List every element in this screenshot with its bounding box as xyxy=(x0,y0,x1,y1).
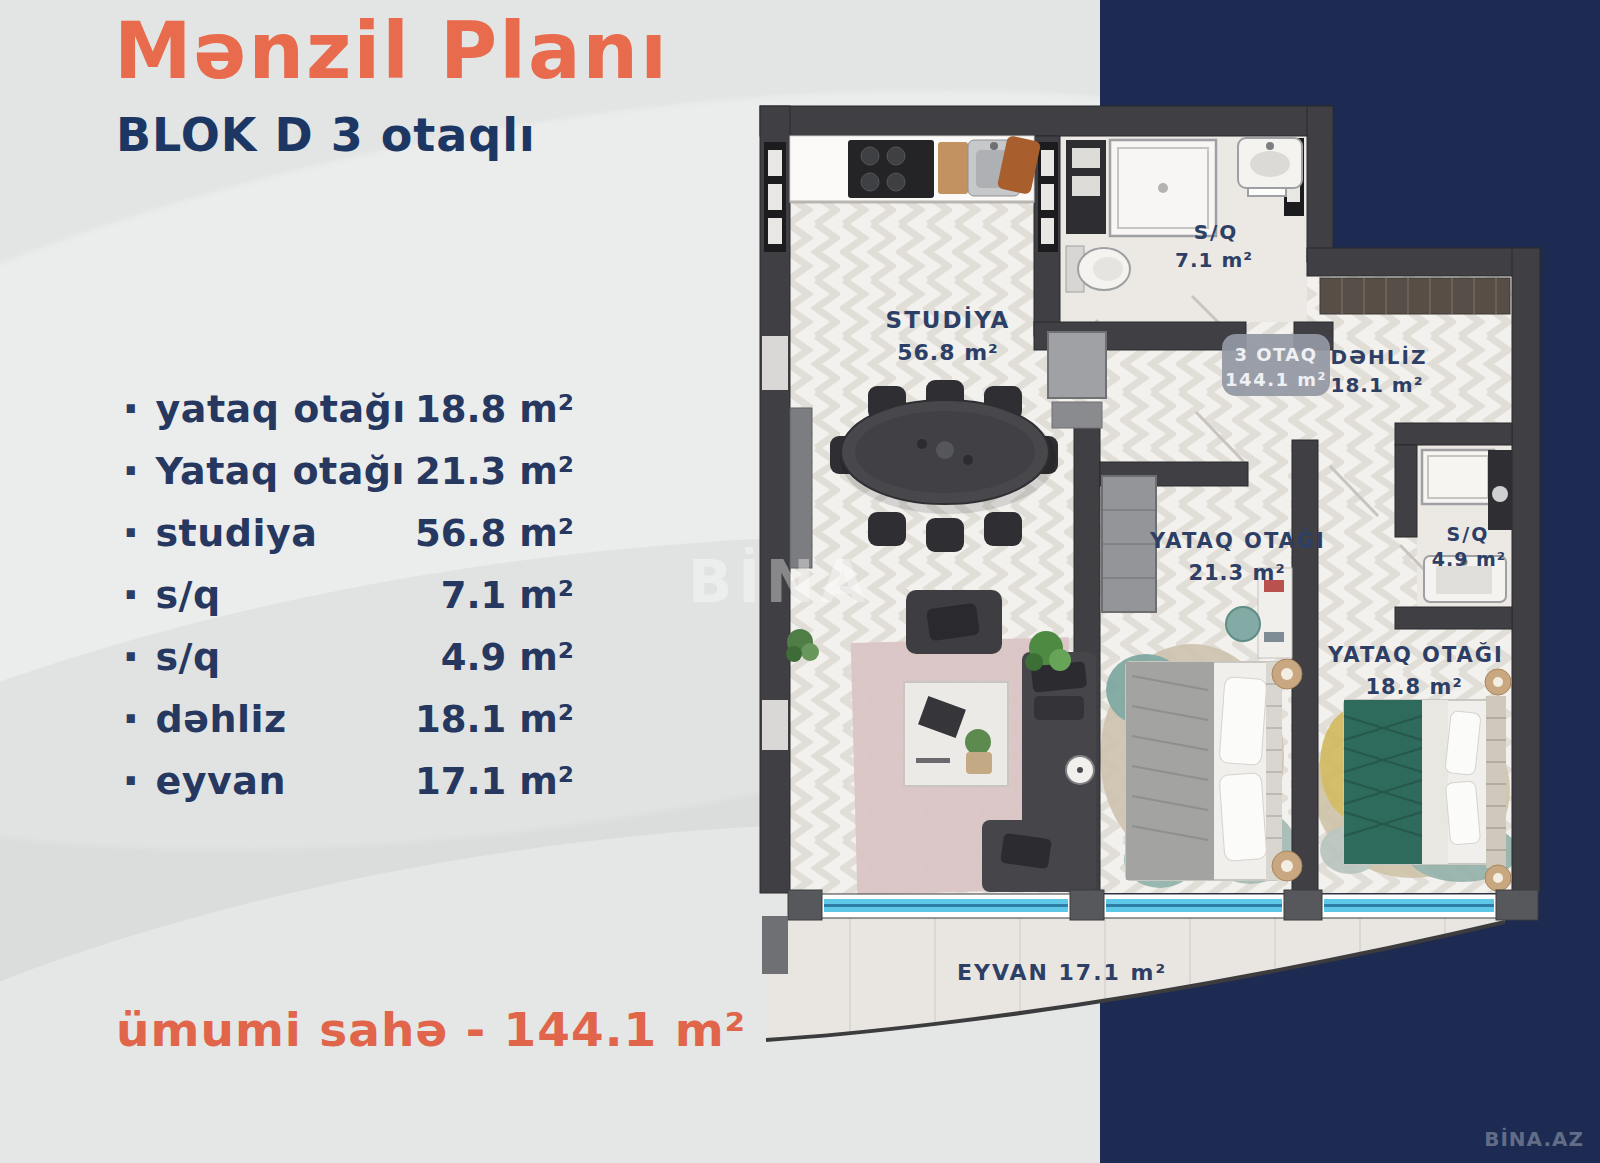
label-yataq1: YATAQ OTAĞI xyxy=(1149,528,1326,553)
label-sq2-area: 4.9 m² xyxy=(1432,548,1506,570)
label-sq1-area: 7.1 m² xyxy=(1175,248,1253,272)
list-item: · Yataq otağı 21.3 m² xyxy=(122,440,574,502)
balcony-side-wall xyxy=(762,916,788,974)
page-subtitle: BLOK D 3 otaqlı xyxy=(116,108,536,162)
pillow xyxy=(1219,677,1267,766)
room-label: eyvan xyxy=(155,759,286,803)
label-yataq1-area: 21.3 m² xyxy=(1188,561,1285,585)
room-label: s/q xyxy=(155,635,220,679)
room-area: 56.8 m² xyxy=(415,512,574,555)
room-list: · yataq otağı 18.8 m² · Yataq otağı 21.3… xyxy=(122,378,574,812)
pillow xyxy=(1445,711,1481,776)
window xyxy=(1102,894,1286,918)
window xyxy=(1320,894,1498,918)
room-label: dəhliz xyxy=(155,697,286,741)
floor-plan: STUDİYA 56.8 m² S/Q 7.1 m² 3 OTAQ 144.1 … xyxy=(755,95,1545,1060)
label-sq1: S/Q xyxy=(1194,220,1239,244)
vanity-chair xyxy=(1226,607,1260,641)
page-title: Mənzil Planı xyxy=(114,6,669,96)
room-area: 18.1 m² xyxy=(415,698,574,741)
list-item: · dəhliz 18.1 m² xyxy=(122,688,574,750)
pillow xyxy=(1445,781,1480,845)
room-area: 17.1 m² xyxy=(415,760,574,803)
cutting-board xyxy=(938,142,968,194)
list-item: · studiya 56.8 m² xyxy=(122,502,574,564)
hall-wardrobe xyxy=(1320,278,1510,314)
pillow xyxy=(1219,773,1267,862)
room-label: studiya xyxy=(155,511,317,555)
room-label: yataq otağı xyxy=(155,387,405,431)
kitchen-counter xyxy=(790,135,1041,202)
label-eyvan: EYVAN 17.1 m² xyxy=(957,960,1167,985)
shower xyxy=(1422,450,1494,504)
room-label: s/q xyxy=(155,573,220,617)
label-sq2: S/Q xyxy=(1447,523,1490,545)
label-yataq2-area: 18.8 m² xyxy=(1365,675,1462,699)
coffee-table xyxy=(904,682,1008,786)
room-area: 18.8 m² xyxy=(415,388,574,431)
label-studiya: STUDİYA xyxy=(886,306,1011,333)
room-area: 7.1 m² xyxy=(441,574,574,617)
label-studiya-area: 56.8 m² xyxy=(897,340,999,365)
room-area: 21.3 m² xyxy=(415,450,574,493)
armchair xyxy=(906,590,1002,654)
label-dehliz-area: 18.1 m² xyxy=(1331,373,1424,397)
list-item: · s/q 4.9 m² xyxy=(122,626,574,688)
room-label: Yataq otağı xyxy=(155,449,405,493)
flyer-page: Mənzil Planı BLOK D 3 otaqlı · yataq ota… xyxy=(0,0,1600,1163)
list-item: · eyvan 17.1 m² xyxy=(122,750,574,812)
badge-title: 3 OTAQ xyxy=(1234,344,1317,365)
list-item: · s/q 7.1 m² xyxy=(122,564,574,626)
window xyxy=(820,894,1072,918)
hall-cabinet xyxy=(1048,332,1106,428)
label-dehliz: DƏHLİZ xyxy=(1330,345,1427,369)
console-cabinet xyxy=(790,408,812,568)
badge-area: 144.1 m² xyxy=(1225,369,1327,390)
watermark-corner: BİNA.AZ xyxy=(1484,1127,1584,1151)
bedroom2-furniture xyxy=(1344,669,1511,891)
total-area-label: ümumi sahə - 144.1 m² xyxy=(116,1002,746,1057)
label-yataq2: YATAQ OTAĞI xyxy=(1327,642,1504,667)
headboard xyxy=(1486,696,1506,868)
list-item: · yataq otağı 18.8 m² xyxy=(122,378,574,440)
room-area: 4.9 m² xyxy=(441,636,574,679)
